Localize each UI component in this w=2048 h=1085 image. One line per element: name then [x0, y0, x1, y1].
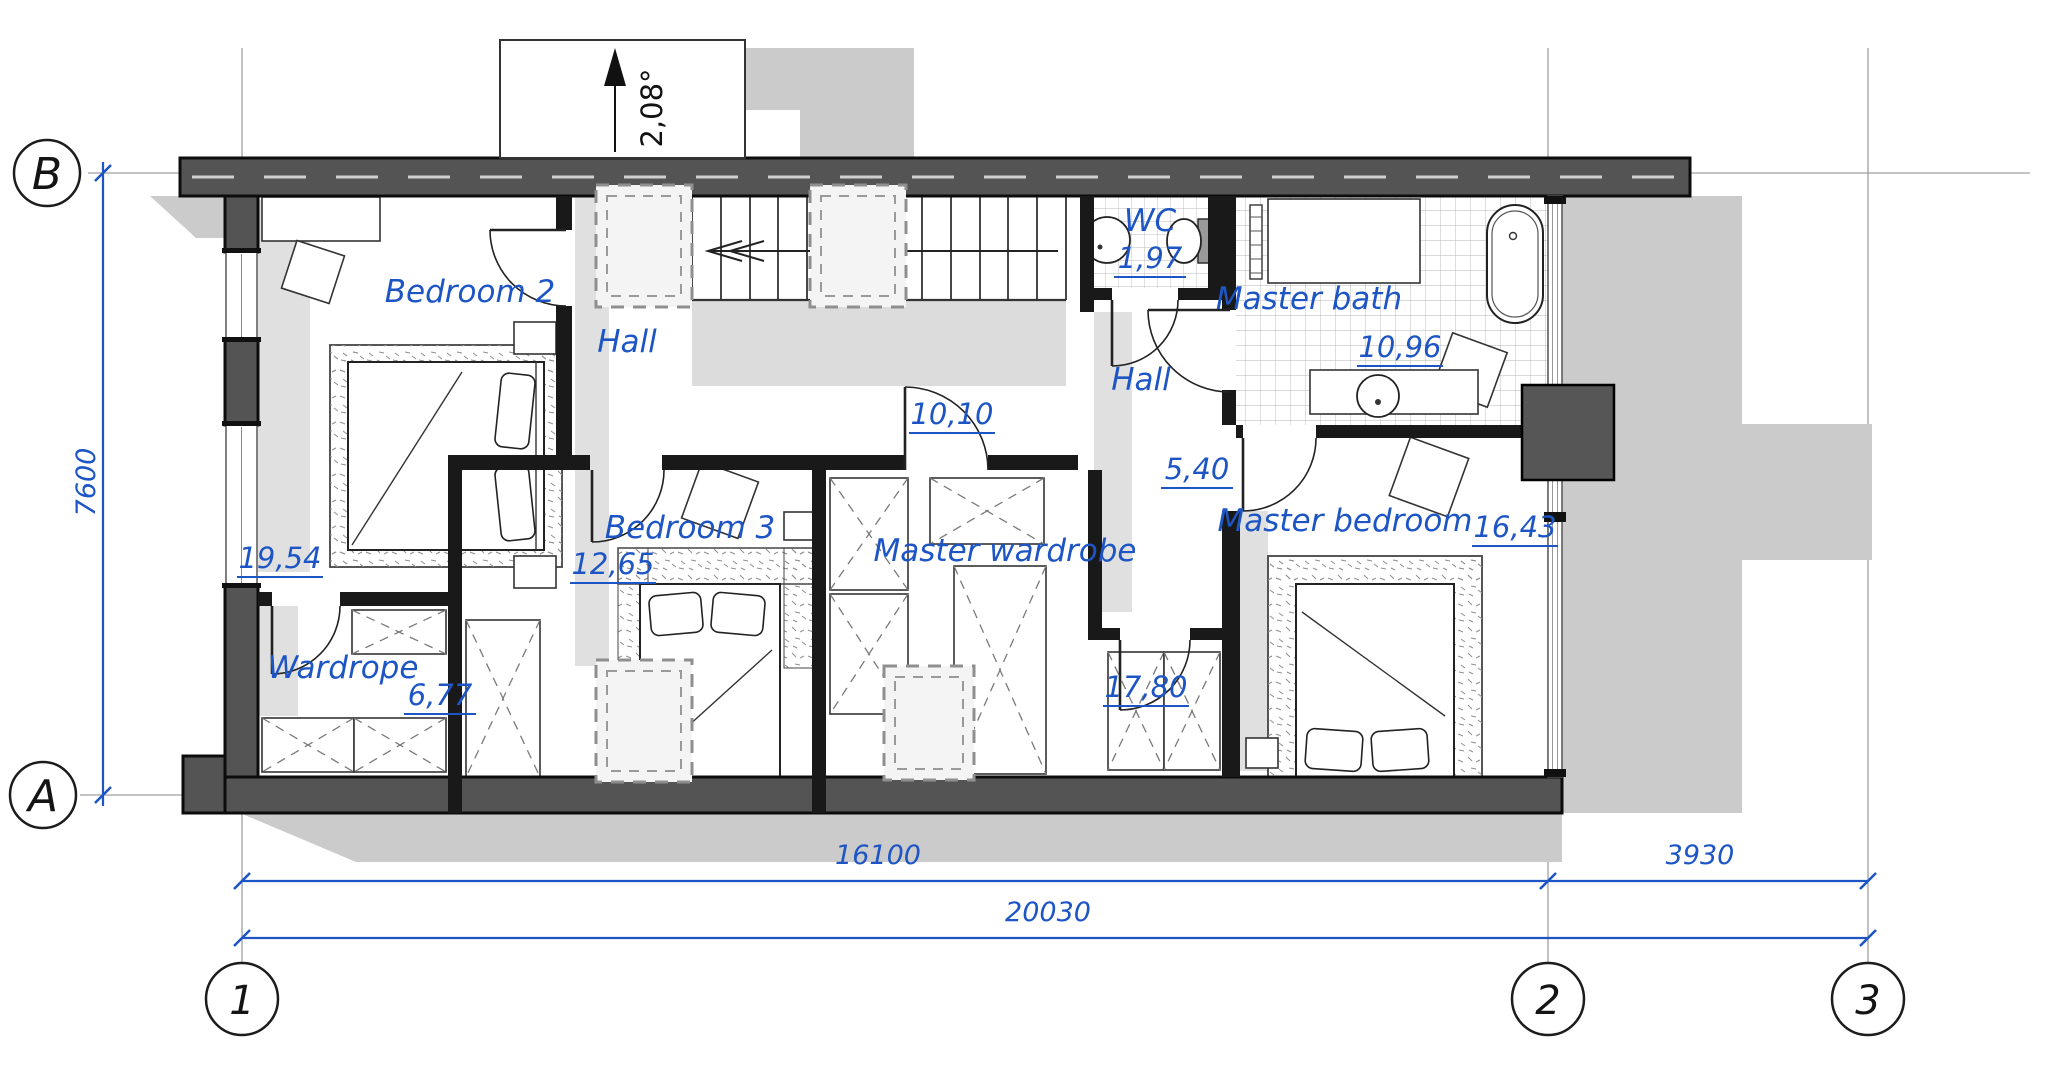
- desk-icon: [262, 197, 380, 241]
- grid-bubble-a-label: A: [25, 771, 58, 822]
- room-area-wardrope: 6,77: [408, 678, 473, 712]
- pillow-icon: [648, 592, 703, 636]
- wc-sink-drain-icon: [1098, 245, 1103, 250]
- dim-bottom-right: 3930: [1666, 840, 1735, 871]
- room-area-hall1: 10,10: [910, 397, 993, 431]
- room-area-master-bedroom: 16,43: [1473, 510, 1556, 544]
- room-label-wc: WC: [1124, 203, 1177, 239]
- room-label-hall2: Hall: [1111, 362, 1171, 398]
- pillow-icon: [494, 372, 536, 449]
- skylight-icon: [810, 185, 906, 307]
- nightstand-icon: [514, 556, 556, 588]
- room-label-bedroom2: Bedroom 2: [385, 274, 555, 310]
- room-label-hall1: Hall: [597, 324, 657, 360]
- floor-plan-svg: 2,08° 7600 16100 3930 20030 Bedroom 2 19…: [0, 0, 2048, 1085]
- room-area-bedroom3: 12,65: [571, 547, 654, 581]
- pillow-icon: [494, 464, 536, 541]
- room-label-master-bath: Master bath: [1216, 281, 1402, 317]
- vanity-sink-icon: [1310, 370, 1478, 417]
- room-area-master-wardrobe: 17,80: [1104, 670, 1187, 704]
- exterior-wall-bottom: [225, 777, 1562, 813]
- nightstand-icon: [784, 512, 816, 540]
- room-label-master-wardrobe: Master wardrobe: [874, 533, 1137, 569]
- room-area-bedroom2: 19,54: [238, 541, 321, 575]
- bath-cabinet-icon: [1268, 199, 1420, 283]
- grid-bubble-3-label: 3: [1855, 978, 1880, 1024]
- topleft-shadow: [150, 196, 225, 238]
- room-label-bedroom3: Bedroom 3: [605, 510, 775, 546]
- terrace-shadow: [1562, 196, 1872, 813]
- slope-box: [500, 40, 745, 158]
- pillow-icon: [1305, 728, 1364, 772]
- grid-bubble-2-label: 2: [1535, 978, 1560, 1024]
- floor-plan-page: 2,08° 7600 16100 3930 20030 Bedroom 2 19…: [0, 0, 2048, 1085]
- skylights: [596, 185, 974, 782]
- chimney-icon: [1522, 385, 1614, 480]
- stair-landing-shadow: [692, 300, 1066, 386]
- bathtub-icon: [1487, 205, 1543, 323]
- pillow-icon: [710, 592, 765, 636]
- window-icon: [222, 248, 261, 342]
- exterior-wall-corner: [183, 756, 225, 813]
- exterior-wall-left: [225, 585, 258, 777]
- room-area-master-bath: 10,96: [1358, 330, 1441, 364]
- roof-slope-value: 2,08°: [635, 68, 669, 147]
- exterior-wall-left: [225, 340, 258, 425]
- exterior-wall-left: [225, 196, 258, 252]
- room-area-hall2: 5,40: [1165, 452, 1230, 486]
- roof-slope-annotation: 2,08°: [500, 40, 745, 158]
- grid-bubble-1-label: 1: [229, 978, 254, 1024]
- nightstand-icon: [1246, 738, 1278, 768]
- towel-radiator-icon: [1250, 205, 1262, 279]
- skylight-icon: [884, 666, 974, 780]
- dim-height-left: 7600: [71, 448, 102, 517]
- glass-wall-icon: [1544, 196, 1566, 777]
- room-area-wc: 1,97: [1118, 241, 1183, 275]
- top-shadow: [738, 48, 914, 158]
- master-bed-icon: [1268, 556, 1482, 782]
- bedroom3-closet-icon: [466, 620, 540, 777]
- nightstand-icon: [514, 322, 556, 354]
- room-label-wardrope: Wardrope: [268, 650, 419, 686]
- grid-bubble-b-label: B: [32, 149, 62, 200]
- skylight-icon: [596, 660, 692, 782]
- room-label-master-bedroom: Master bedroom: [1217, 503, 1472, 539]
- dim-bottom-left: 16100: [835, 840, 921, 871]
- pillow-icon: [1371, 728, 1430, 772]
- masterbedroom-shadow: [1240, 511, 1268, 771]
- dim-bottom-total: 20030: [1005, 897, 1091, 928]
- door-icon: [1243, 438, 1316, 511]
- skylight-icon: [596, 185, 692, 307]
